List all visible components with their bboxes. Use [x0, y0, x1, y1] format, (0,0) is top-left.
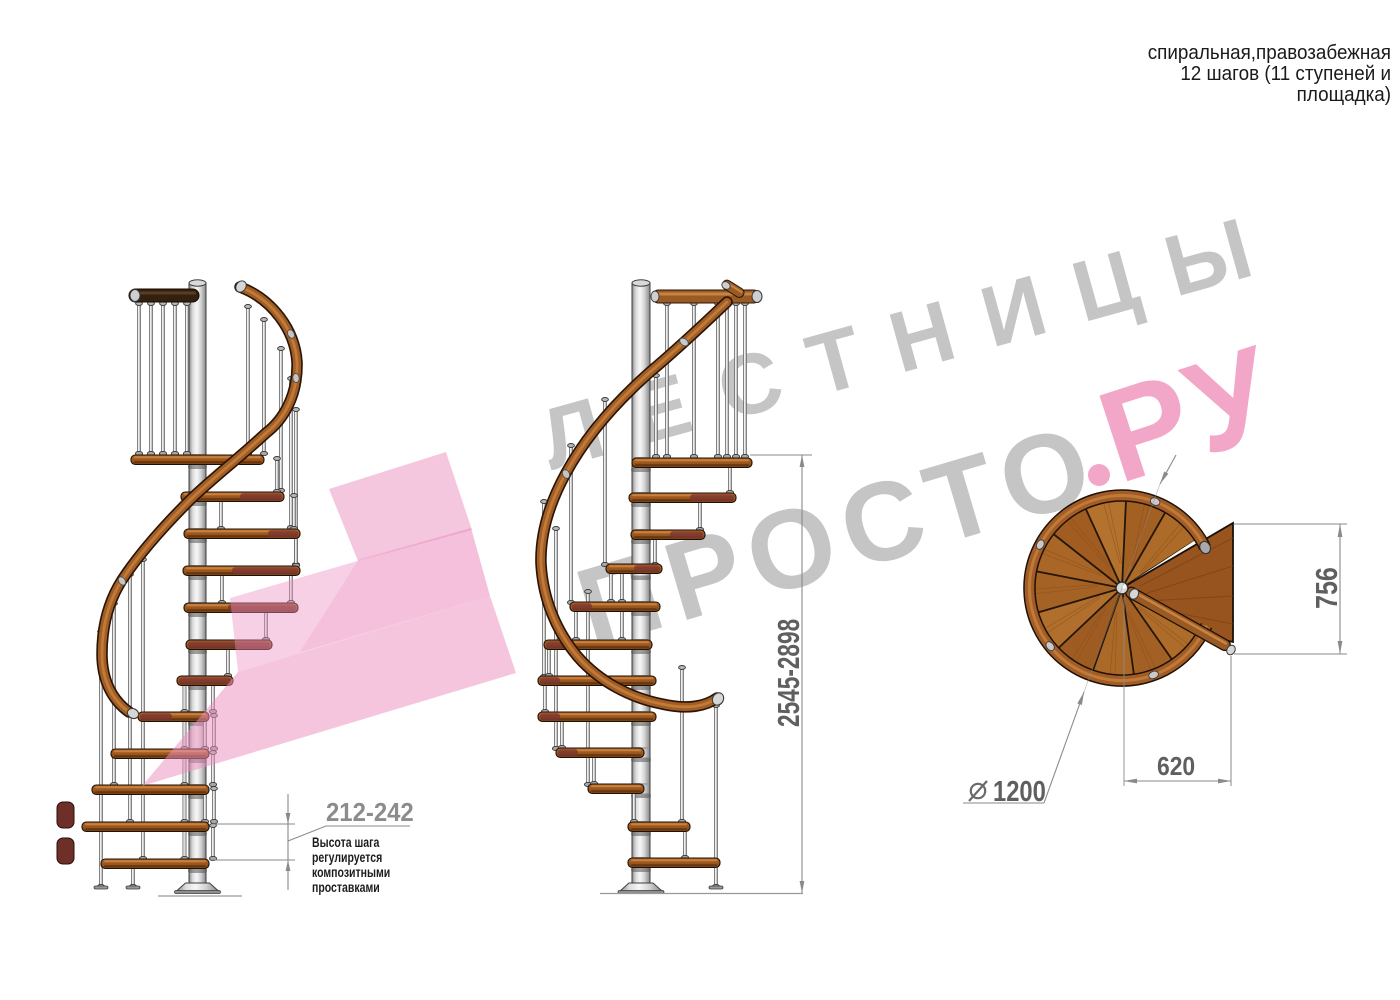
svg-text:Высота шага: Высота шага	[312, 835, 380, 851]
svg-text:проставками: проставками	[312, 880, 380, 896]
svg-text:композитными: композитными	[312, 865, 390, 881]
svg-text:1200: 1200	[993, 775, 1046, 808]
svg-text:2545-2898: 2545-2898	[770, 619, 805, 727]
svg-text:756: 756	[1308, 567, 1343, 609]
svg-text:площадка): площадка)	[1297, 83, 1391, 106]
svg-text:спиральная,правозабежная: спиральная,правозабежная	[1148, 41, 1391, 64]
svg-text:регулируется: регулируется	[312, 850, 382, 866]
svg-text:12 шагов (11 ступеней и: 12 шагов (11 ступеней и	[1180, 62, 1391, 85]
svg-text:212-242: 212-242	[326, 798, 414, 827]
svg-text:620: 620	[1157, 753, 1195, 782]
